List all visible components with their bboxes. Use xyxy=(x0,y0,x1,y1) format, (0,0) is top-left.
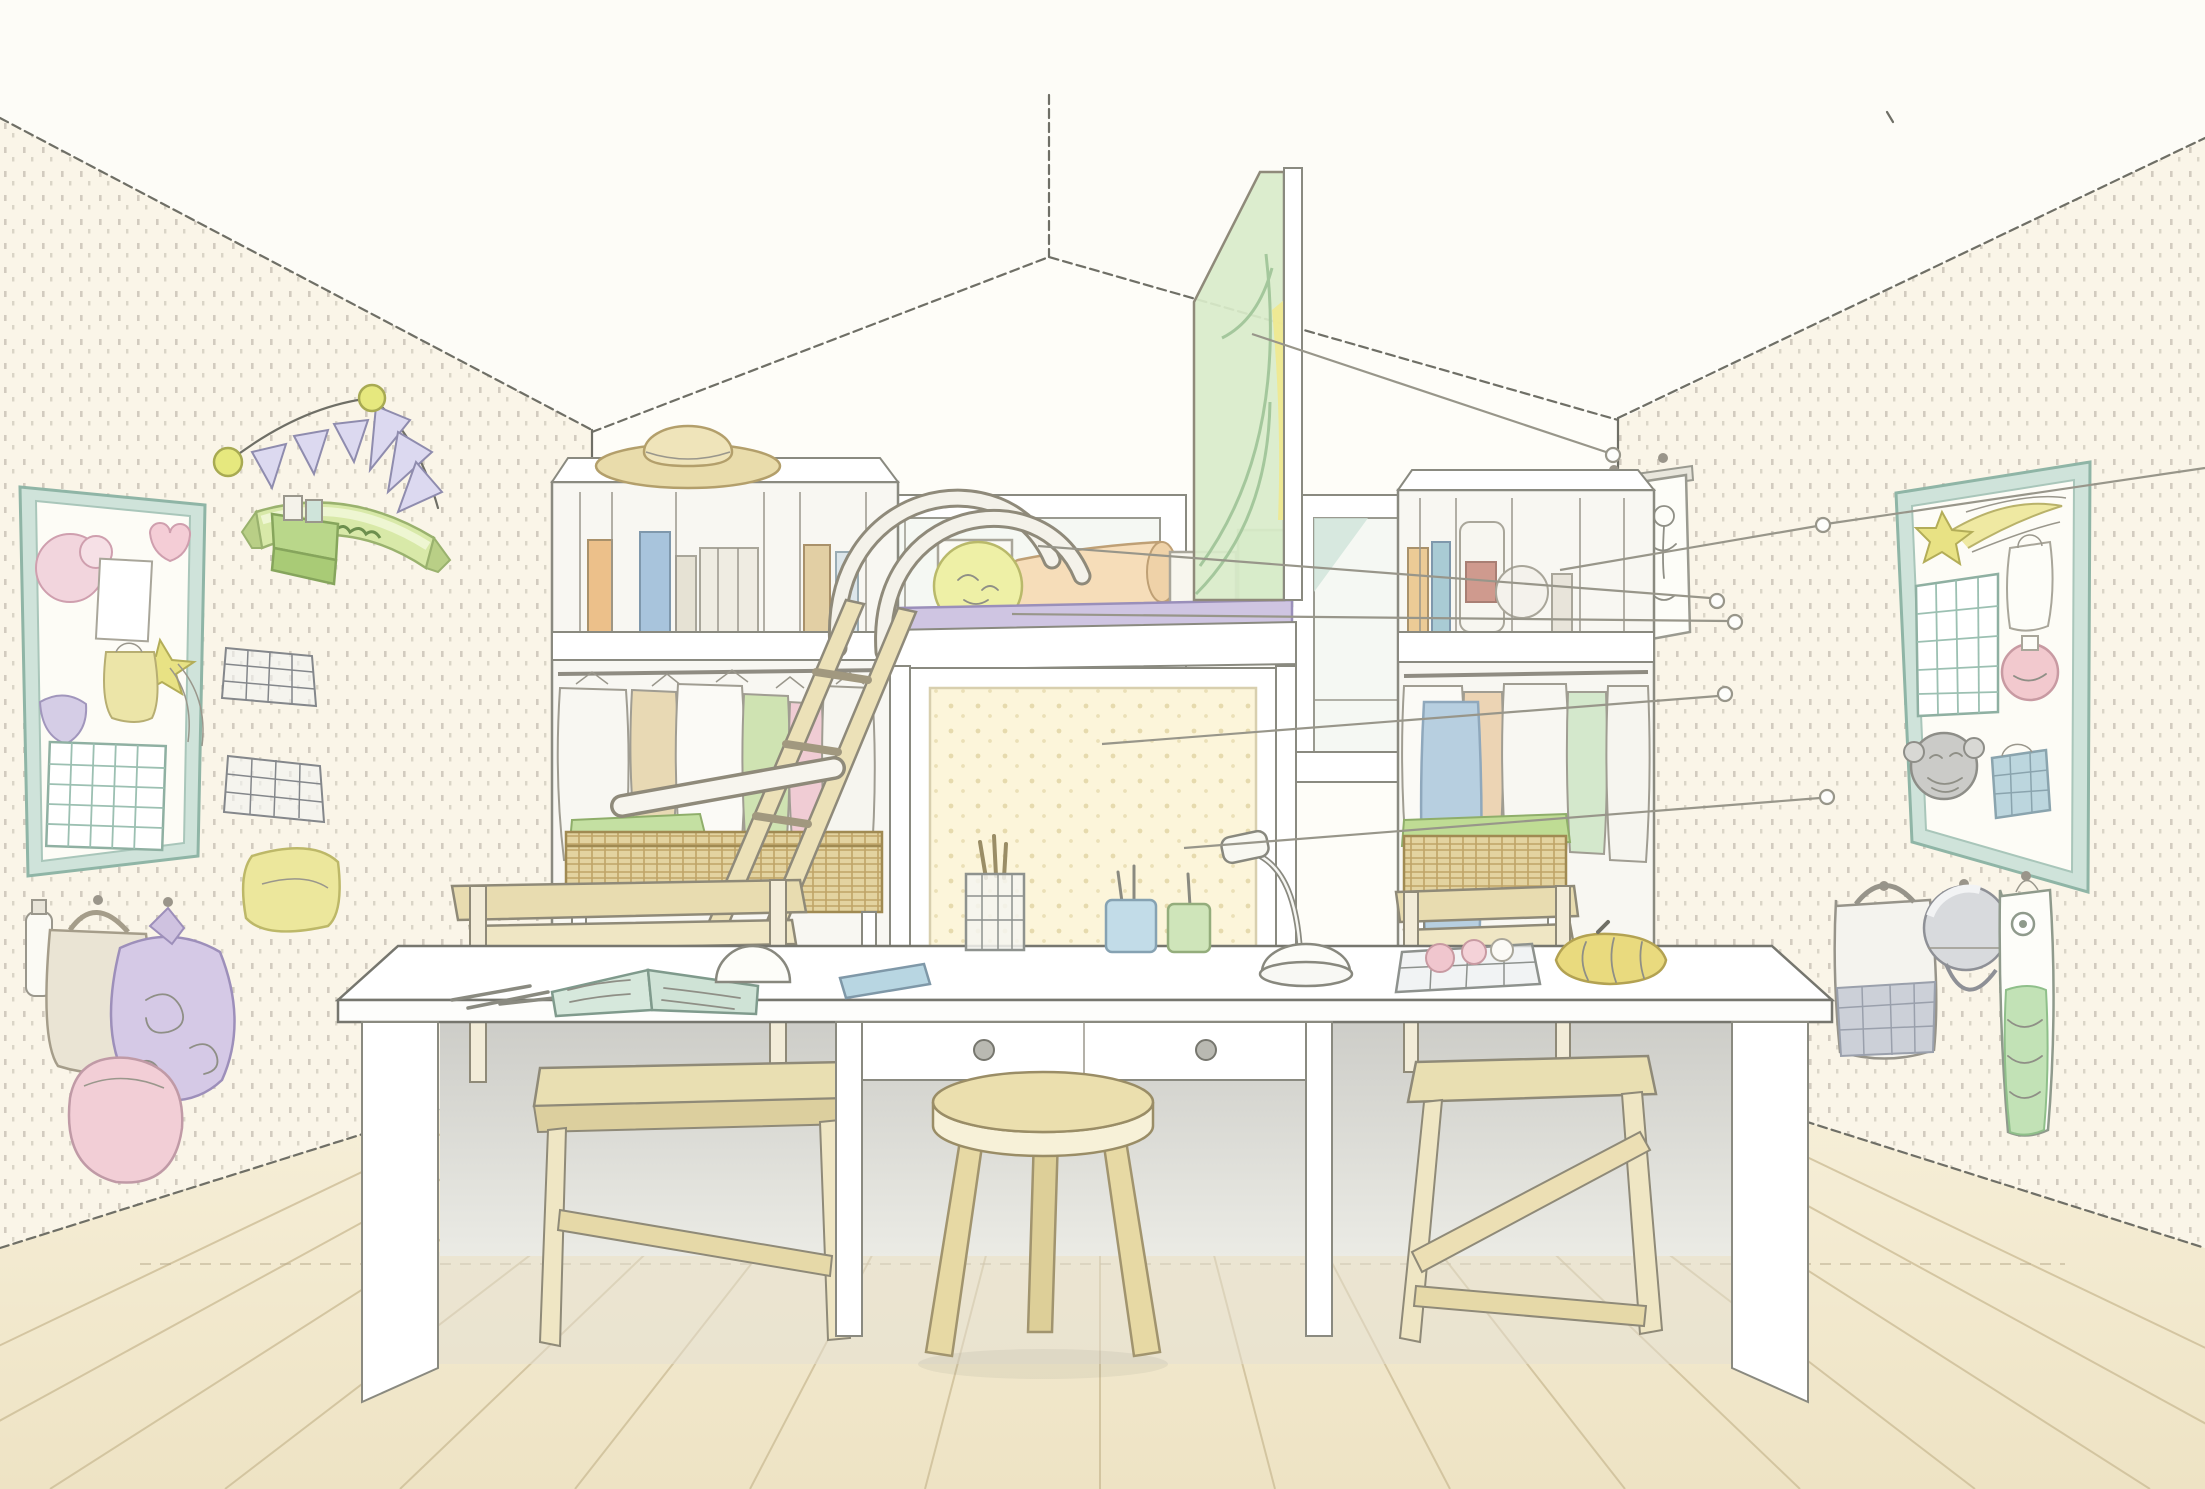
yellow-wall-cloth xyxy=(243,848,340,931)
callout-ring xyxy=(1816,518,1830,532)
bulletin-board-right xyxy=(1896,462,2090,892)
garland-ball-right xyxy=(359,385,385,411)
pink-pomander xyxy=(2002,644,2058,700)
pinned-bag-sketch xyxy=(104,652,158,722)
closet-right xyxy=(1398,470,1654,1004)
callout-ring xyxy=(1606,448,1620,462)
callout-ring xyxy=(1728,615,1742,629)
callout-ring xyxy=(1820,790,1834,804)
bulletin-board-left xyxy=(20,487,205,876)
illustration-canvas xyxy=(0,0,2205,1489)
pinned-paper xyxy=(96,559,152,642)
garland-ball-left xyxy=(214,448,242,476)
desk-side-right xyxy=(1732,1022,1808,1402)
desk-divider-right xyxy=(1306,1022,1332,1336)
pinned-calendar xyxy=(46,742,166,850)
desk-divider-left xyxy=(836,1022,862,1336)
pink-pouch xyxy=(69,1058,182,1183)
desk-side-left xyxy=(362,1022,438,1402)
callout-ring xyxy=(1718,687,1732,701)
apron-sketch xyxy=(2007,542,2053,631)
room-scene xyxy=(0,0,2205,1489)
callout-ring xyxy=(1710,594,1724,608)
closet-left xyxy=(552,426,898,960)
stool xyxy=(918,1072,1168,1379)
carp-streamer xyxy=(2000,871,2054,1136)
calendar-grid xyxy=(1916,574,1998,716)
